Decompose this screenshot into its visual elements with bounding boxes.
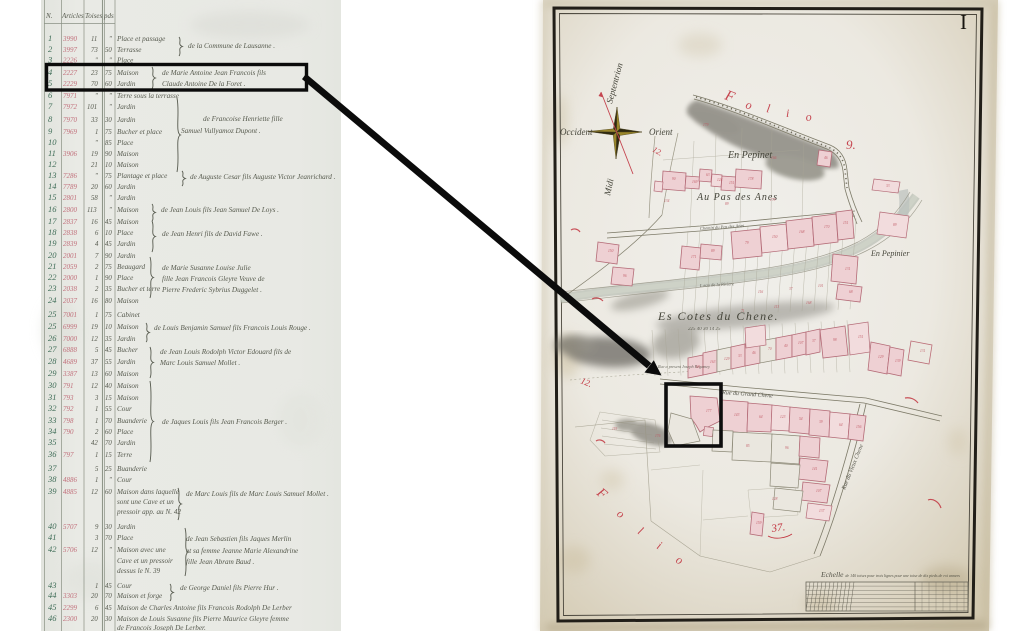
svg-text:de Marc Louis fils de Marc Lou: de Marc Louis fils de Marc Louis Samuel …	[186, 490, 329, 498]
svg-text:70: 70	[768, 347, 772, 351]
svg-text:dessus le N. 39: dessus le N. 39	[117, 567, 161, 575]
svg-text:156: 156	[856, 425, 862, 429]
svg-text:68: 68	[849, 290, 853, 294]
svg-text:159: 159	[756, 521, 762, 525]
svg-text:33: 33	[738, 354, 742, 358]
svg-text:128: 128	[772, 497, 778, 501]
svg-text:89: 89	[725, 202, 729, 206]
svg-text:137: 137	[819, 509, 825, 513]
svg-text:151: 151	[858, 335, 864, 339]
svg-text:90: 90	[672, 177, 676, 181]
svg-text:de Marie Susanne Louise Julie: de Marie Susanne Louise Julie	[162, 264, 251, 272]
svg-text:68: 68	[696, 365, 700, 369]
svg-text:fille Jean Francois Gleyre Veu: fille Jean Francois Gleyre Veuve de	[162, 275, 265, 283]
svg-text:96: 96	[623, 274, 627, 278]
svg-text:46: 46	[824, 156, 828, 160]
svg-text:33: 33	[886, 184, 890, 188]
svg-text:166: 166	[771, 156, 777, 160]
svg-text:Claude Antoine De la Foret .: Claude Antoine De la Foret .	[162, 80, 246, 88]
svg-text:64: 64	[759, 415, 763, 419]
svg-text:Au Pas des Anes: Au Pas des Anes	[696, 192, 778, 203]
svg-text:En Pepinier: En Pepinier	[870, 249, 910, 258]
svg-text:Orient: Orient	[649, 127, 673, 137]
svg-text:141: 141	[812, 467, 818, 471]
svg-text:150: 150	[772, 235, 778, 239]
svg-text:101: 101	[818, 284, 824, 288]
svg-text:Marc Louis Samuel Mollet .: Marc Louis Samuel Mollet .	[159, 359, 240, 367]
svg-text:225 40 30 14 25: 225 40 30 14 25	[688, 327, 721, 332]
svg-text:176: 176	[655, 434, 661, 438]
svg-text:98: 98	[833, 338, 837, 342]
svg-text:39: 39	[819, 420, 823, 424]
svg-text:de Marie Antoine Jean Francois: de Marie Antoine Jean Francois fils	[162, 69, 266, 77]
svg-text:89: 89	[893, 223, 897, 227]
svg-text:46: 46	[752, 351, 756, 355]
svg-text:sont une Cave et un: sont une Cave et un	[117, 498, 174, 506]
svg-text:151: 151	[729, 181, 735, 185]
svg-text:de Jean Louis fils Jean Samuel: de Jean Louis fils Jean Samuel De Loys .	[161, 206, 279, 214]
svg-text:89: 89	[711, 249, 715, 253]
svg-text:de Auguste Cesar fils Auguste: de Auguste Cesar fils Auguste Victor Jea…	[190, 173, 336, 181]
svg-text:En Pepinet: En Pepinet	[727, 150, 772, 161]
svg-text:de Francoise Henriette fille: de Francoise Henriette fille	[203, 115, 283, 123]
svg-text:37.: 37.	[770, 521, 786, 535]
svg-text:de Francois Joseph De Lerber.: de Francois Joseph De Lerber.	[117, 624, 206, 631]
svg-text:9.: 9.	[846, 137, 856, 152]
svg-text:131: 131	[920, 349, 926, 353]
svg-text:de Jaques Louis fils Jean Fran: de Jaques Louis fils Jean Francois Berge…	[162, 418, 287, 426]
svg-text:116: 116	[758, 290, 763, 294]
svg-text:96: 96	[785, 446, 789, 450]
svg-text:171: 171	[691, 255, 697, 259]
svg-text:113: 113	[774, 305, 779, 309]
svg-text:134: 134	[664, 199, 670, 203]
svg-text:i: i	[786, 106, 789, 120]
svg-text:de Louis Benjamin Samuel fils: de Louis Benjamin Samuel fils Francois L…	[154, 324, 311, 332]
svg-text:71: 71	[741, 309, 745, 313]
svg-text:131: 131	[845, 267, 851, 271]
svg-text:179: 179	[770, 198, 776, 202]
svg-text:163: 163	[710, 360, 716, 364]
svg-text:168: 168	[799, 230, 805, 234]
svg-text:143: 143	[734, 413, 740, 417]
svg-text:Rue a present Joseph Regamey: Rue a present Joseph Regamey	[657, 364, 710, 369]
svg-text:139: 139	[895, 359, 901, 363]
svg-text:150: 150	[608, 249, 614, 253]
svg-text:Es Cotes du Chene.: Es Cotes du Chene.	[657, 309, 779, 323]
svg-text:54: 54	[799, 417, 803, 421]
svg-text:Samuel Vullyamoz Dupont .: Samuel Vullyamoz Dupont .	[181, 127, 261, 135]
svg-text:64: 64	[839, 423, 843, 427]
svg-text:168: 168	[806, 301, 812, 305]
svg-text:177: 177	[706, 409, 712, 413]
svg-text:40: 40	[784, 344, 788, 348]
svg-text:123: 123	[780, 415, 786, 419]
svg-text:63: 63	[706, 173, 710, 177]
svg-text:179: 179	[703, 123, 709, 127]
svg-text:fille Jean Abram Baud .: fille Jean Abram Baud .	[186, 558, 255, 566]
svg-text:de Jean Henri fils de David Fa: de Jean Henri fils de David Fawe .	[162, 230, 263, 238]
svg-text:170: 170	[824, 225, 830, 229]
svg-text:I: I	[960, 10, 967, 34]
svg-text:129: 129	[724, 357, 730, 361]
svg-text:107: 107	[798, 341, 804, 345]
svg-text:124: 124	[717, 178, 723, 182]
svg-text:178: 178	[748, 177, 754, 181]
svg-text:79: 79	[745, 241, 749, 245]
svg-text:Occident: Occident	[560, 127, 593, 137]
svg-text:169: 169	[692, 180, 698, 184]
svg-text:119: 119	[612, 427, 617, 431]
svg-text:Pierre Frederic Sybrius Duggel: Pierre Frederic Sybrius Duggelet .	[161, 286, 262, 294]
svg-text:151: 151	[843, 221, 849, 225]
svg-text:et sa femme Jeanne Marie Alexa: et sa femme Jeanne Marie Alexandrine	[186, 547, 299, 555]
svg-text:37: 37	[812, 339, 816, 343]
svg-text:de Jean Louis Rodolph Victor E: de Jean Louis Rodolph Victor Edouard fil…	[160, 348, 292, 356]
svg-text:129: 129	[878, 355, 884, 359]
svg-text:pressoir app. au N. 42: pressoir app. au N. 42	[116, 508, 181, 516]
svg-text:de Jean Sebastien fils Jaques: de Jean Sebastien fils Jaques Merlin	[186, 535, 292, 543]
svg-text:Cave et un pressoir: Cave et un pressoir	[117, 557, 173, 565]
svg-text:107: 107	[816, 489, 822, 493]
svg-text:de la Commune de Lausanne .: de la Commune de Lausanne .	[188, 42, 275, 50]
svg-text:37: 37	[789, 287, 793, 291]
svg-text:de George Daniel fils Pierre H: de George Daniel fils Pierre Hur .	[180, 584, 279, 592]
svg-text:85: 85	[746, 444, 750, 448]
